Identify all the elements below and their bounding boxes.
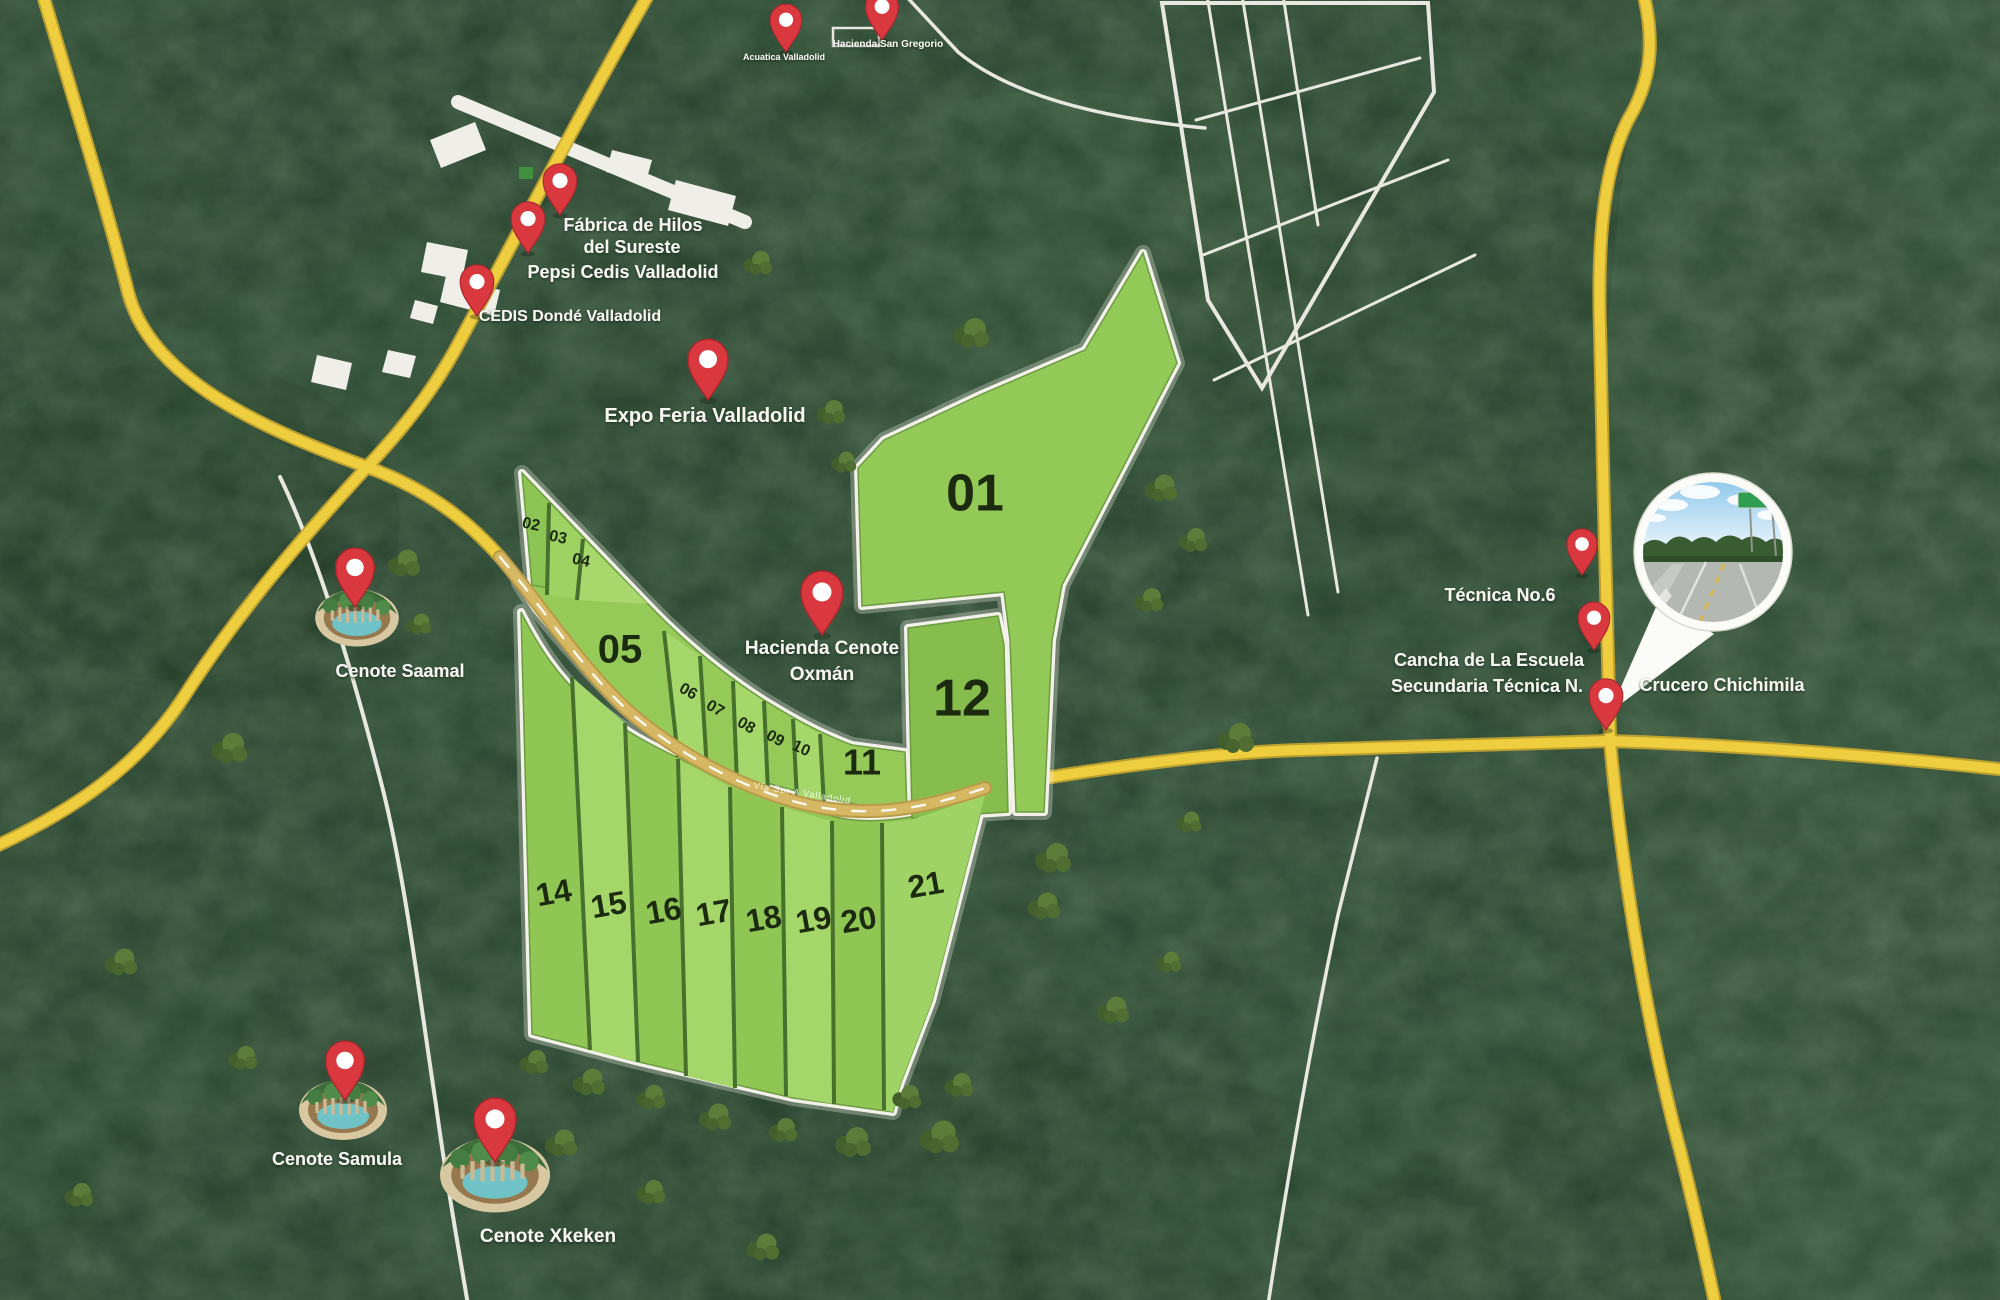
satellite-lot-map: Vía Sur A Valladolid 01 12 05 11 02 03 0… [0,0,2000,1300]
label-cedis: CEDIS Dondé Valladolid [479,308,661,325]
lot-01-label: 01 [946,465,1004,523]
lot-03-label: 03 [548,528,569,548]
label-cancha-1: Cancha de La Escuela [1394,650,1585,670]
lot-20-label: 20 [838,899,879,941]
lot-16-label: 16 [643,890,684,932]
lot-21-label: 21 [905,864,946,906]
label-cenote-samula: Cenote Samula [272,1149,403,1169]
lot-04-label: 04 [571,551,592,571]
label-cenote-saamal: Cenote Saamal [335,661,464,681]
map-canvas: Vía Sur A Valladolid 01 12 05 11 02 03 0… [0,0,2000,1300]
label-fabrica-2: del Sureste [583,237,680,257]
label-oxman-1: Hacienda Cenote [745,638,899,659]
lot-12-label: 12 [933,670,991,728]
lot-02-label: 02 [521,515,542,535]
label-pepsi: Pepsi Cedis Valladolid [527,262,718,282]
label-acuatica: Acuatica Valladolid [743,52,825,62]
label-oxman-2: Oxmán [790,664,854,685]
label-cancha-2: Secundaria Técnica N. [1391,676,1583,696]
lot-19-label: 19 [793,899,834,941]
label-fabrica-1: Fábrica de Hilos [563,215,702,235]
lot-17-label: 17 [693,892,734,934]
label-san-gregorio: Hacienda San Gregorio [833,39,944,50]
lot-18-label: 18 [743,898,784,940]
lot-15-label: 15 [588,884,629,926]
lot-05-label: 05 [598,628,643,672]
lot-14-label: 14 [533,872,575,914]
label-expo-feria: Expo Feria Valladolid [604,405,805,427]
label-crucero: Crucero Chichimila [1639,675,1805,695]
lot-11-label: 11 [843,742,881,783]
label-cenote-xkeken: Cenote Xkeken [480,1226,616,1247]
label-tecnica: Técnica No.6 [1444,585,1555,605]
